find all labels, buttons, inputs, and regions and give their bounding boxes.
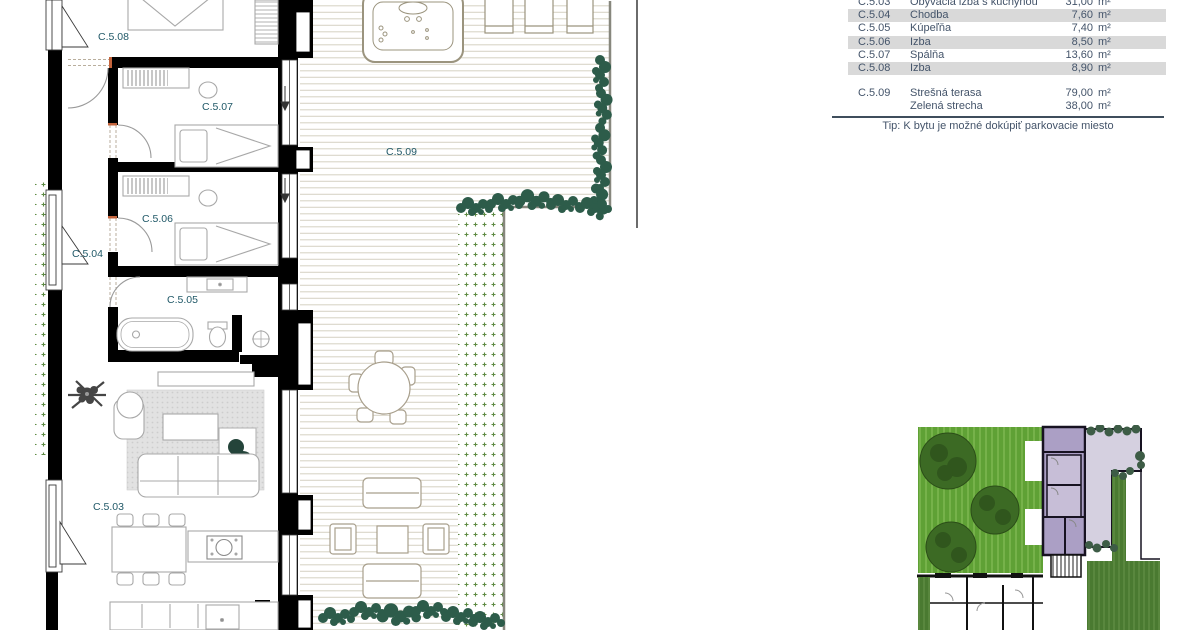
area-unit: m² xyxy=(1093,62,1124,75)
legend-row: C.5.09 Strešná terasa 79,00 m² xyxy=(848,87,1166,100)
coffee-table-icon xyxy=(163,414,218,440)
room-label-c509: C.5.09 xyxy=(386,146,417,158)
stairs-icon xyxy=(1051,555,1081,577)
open-casement-icon xyxy=(62,6,88,47)
room-label-c508: C.5.08 xyxy=(98,31,129,43)
tip-label: Tip: xyxy=(882,120,900,132)
area-unit: m² xyxy=(1093,0,1124,9)
area-unit: m² xyxy=(1093,49,1124,62)
plant-scribble-icon xyxy=(68,381,106,408)
room-code: C.5.06 xyxy=(858,36,910,49)
room-area: 79,00 xyxy=(1045,87,1093,100)
sink-icon xyxy=(206,605,239,629)
hot-tub-icon xyxy=(363,0,463,62)
room-code: C.5.04 xyxy=(858,9,910,22)
room-name: Kúpeľňa xyxy=(910,22,1045,35)
room-code: C.5.07 xyxy=(858,49,910,62)
kitchen-counter xyxy=(110,602,278,630)
green-roof-strip xyxy=(458,208,505,630)
room-label-c506: C.5.06 xyxy=(142,213,173,225)
room-name: Strešná terasa xyxy=(910,87,1045,100)
room-name: Spálňa xyxy=(910,49,1045,62)
highlighted-unit xyxy=(1043,427,1085,577)
sun-loungers xyxy=(485,0,593,33)
legend-row: C.5.07 Spálňa 13,60 m² xyxy=(848,49,1166,62)
room-code: C.5.03 xyxy=(858,0,910,9)
tip-text: K bytu je možné dokúpiť parkovacie miest… xyxy=(903,120,1113,132)
room-name: Chodba xyxy=(910,9,1045,22)
tv-sideboard-icon xyxy=(158,372,254,386)
area-unit: m² xyxy=(1093,36,1124,49)
room-c508-furniture xyxy=(128,0,278,44)
room-code: C.5.05 xyxy=(858,22,910,35)
legend-row: C.5.08 Izba 8,90 m² xyxy=(848,62,1166,75)
legend-divider xyxy=(832,116,1164,118)
dining-table-icon xyxy=(112,527,186,572)
roof-terrace-rows: C.5.09 Strešná terasa 79,00 m² Zelená st… xyxy=(848,87,1166,113)
room-area: 31,00 xyxy=(1045,0,1093,9)
room-name: Izba xyxy=(910,62,1045,75)
room-code: C.5.09 xyxy=(858,87,910,100)
legend-row: C.5.04 Chodba 7,60 m² xyxy=(848,9,1166,22)
room-area: 13,60 xyxy=(1045,49,1093,62)
area-unit: m² xyxy=(1093,87,1124,100)
bathtub-icon xyxy=(117,318,193,351)
room-name: Zelená strecha xyxy=(910,100,1045,113)
room-code: C.5.08 xyxy=(858,62,910,75)
room-label-c504: C.5.04 xyxy=(72,248,103,260)
room-area: 38,00 xyxy=(1045,100,1093,113)
room-label-c505: C.5.05 xyxy=(167,294,198,306)
sofa-icon xyxy=(138,454,259,497)
legend-row: C.5.06 Izba 8,50 m² xyxy=(848,36,1166,49)
room-c507-furniture xyxy=(123,68,278,167)
room-label-c507: C.5.07 xyxy=(202,101,233,113)
room-area: 8,90 xyxy=(1045,62,1093,75)
legend-row: Zelená strecha 38,00 m² xyxy=(848,100,1166,113)
area-unit: m² xyxy=(1093,100,1124,113)
floor-plan-drawing: C.5.08 C.5.07 C.5.06 C.5.04 C.5.05 C.5.0… xyxy=(30,0,645,630)
room-name: Obývacia izba s kuchyňou xyxy=(910,0,1045,9)
area-legend-table: C.5.03 Obývacia izba s kuchyňou 31,00 m²… xyxy=(848,0,1166,114)
site-plan-thumbnail xyxy=(915,425,1160,630)
floorplan-sheet: C.5.08 C.5.07 C.5.06 C.5.04 C.5.05 C.5.0… xyxy=(0,0,1200,630)
tip-note: Tip: K bytu je možné dokúpiť parkovacie … xyxy=(832,120,1164,133)
area-unit: m² xyxy=(1093,22,1124,35)
area-unit: m² xyxy=(1093,9,1124,22)
room-name: Izba xyxy=(910,36,1045,49)
room-label-c503: C.5.03 xyxy=(93,501,124,513)
room-area: 7,60 xyxy=(1045,9,1093,22)
open-casement-icon xyxy=(60,522,86,564)
living-c503-furniture xyxy=(110,372,278,630)
room-area: 7,40 xyxy=(1045,22,1093,35)
bathroom-c505-fixtures xyxy=(117,277,270,351)
legend-row: C.5.05 Kúpeľňa 7,40 m² xyxy=(848,22,1166,35)
legend-row: C.5.03 Obývacia izba s kuchyňou 31,00 m² xyxy=(848,0,1166,9)
room-area: 8,50 xyxy=(1045,36,1093,49)
building-floor-outline xyxy=(915,573,1087,630)
